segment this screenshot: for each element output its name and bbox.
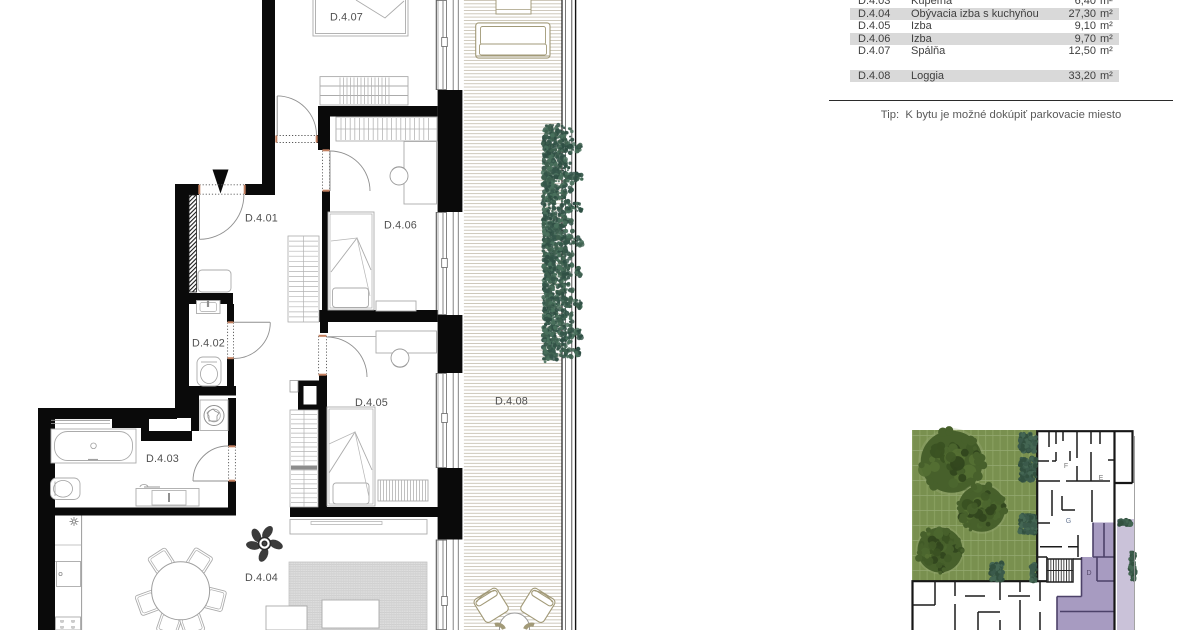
svg-text:D.4.01: D.4.01 (245, 213, 278, 225)
svg-text:E: E (1099, 475, 1104, 482)
svg-text:D.4.05: D.4.05 (355, 397, 388, 409)
svg-text:G: G (1066, 518, 1071, 525)
svg-text:F: F (1064, 463, 1068, 470)
svg-text:D.4.06: D.4.06 (384, 220, 417, 232)
svg-text:D: D (1086, 570, 1091, 577)
svg-text:D.4.03: D.4.03 (146, 453, 179, 465)
svg-text:D.4.02: D.4.02 (192, 338, 225, 350)
svg-text:D.4.07: D.4.07 (330, 12, 363, 24)
svg-text:D.4.04: D.4.04 (245, 572, 278, 584)
svg-text:D.4.08: D.4.08 (495, 396, 528, 408)
